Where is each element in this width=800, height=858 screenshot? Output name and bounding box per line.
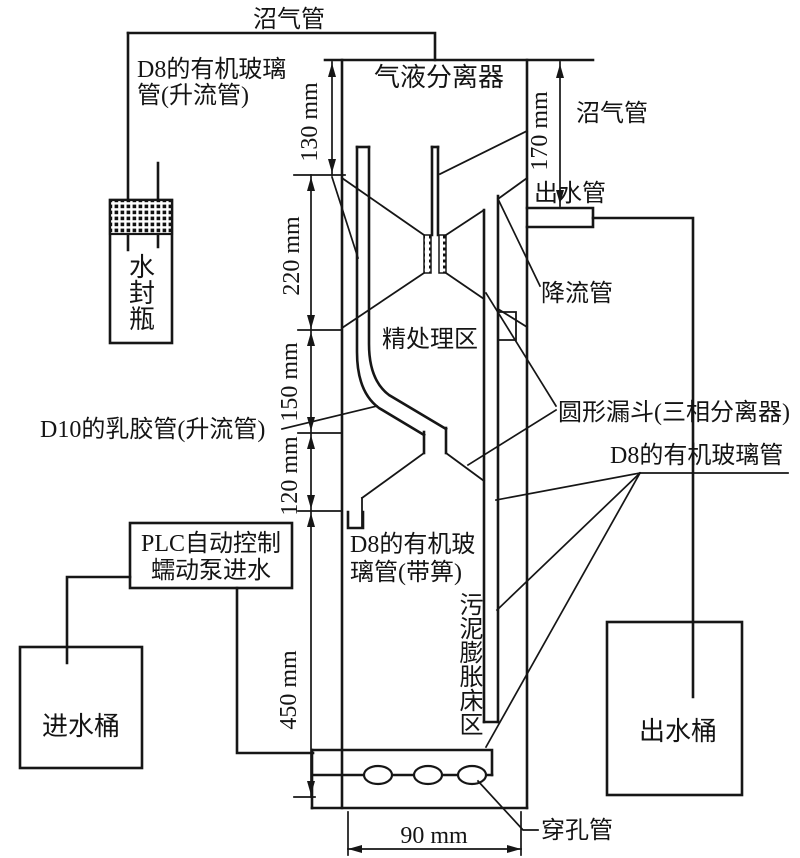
label-biogas-pipe-right: 沼气管 (576, 100, 648, 127)
outlet-bucket-box (607, 622, 742, 795)
perforation-hole (364, 766, 392, 784)
arrowhead (507, 845, 521, 853)
label-d10-latex-riser: D10的乳胶管(升流管) (40, 416, 265, 443)
reactor-diagram: 沼气管 D8的有机玻璃 管(升流管) 水封瓶 气液分离器 沼气管 出水管 降流管… (0, 0, 800, 858)
arrowhead (307, 513, 315, 527)
arrowhead (307, 435, 315, 449)
perforated-throat-left (424, 235, 431, 273)
dim-90mm: 90 mm (400, 823, 468, 849)
arrowhead (307, 315, 315, 329)
arrowhead (328, 159, 336, 173)
label-perforated-pipe: 穿孔管 (541, 817, 613, 844)
label-outlet-bucket: 出水桶 (639, 717, 717, 746)
arrowhead (307, 781, 315, 795)
label-d8-grate-line1: D8的有机玻 (350, 531, 475, 558)
label-outlet-pipe: 出水管 (534, 180, 606, 207)
label-plc-line1: PLC自动控制 (141, 530, 281, 557)
perforation-hole (458, 766, 486, 784)
wall-inlet-port (348, 512, 363, 528)
arrowhead (307, 177, 315, 191)
label-sludge-expansion-zone: 污泥膨胀床区 (455, 592, 483, 736)
label-d8-grate-line2: 璃管(带箅) (350, 559, 462, 586)
dim-120mm: 120 mm (277, 436, 303, 516)
lower-funnel (362, 428, 484, 528)
dimension-lines (294, 62, 560, 855)
inlet-bucket-box (20, 647, 142, 768)
dim-130mm: 130 mm (297, 82, 323, 162)
perforated-throat-right (439, 235, 446, 273)
downflow-pipe-lines (484, 196, 516, 722)
label-d8-glass-riser-line2: 管(升流管) (137, 82, 249, 109)
arrowhead (328, 63, 336, 77)
dim-150mm: 150 mm (277, 342, 303, 422)
label-fine-treatment-zone: 精处理区 (382, 326, 478, 353)
label-circular-funnel: 圆形漏斗(三相分离器) (558, 399, 790, 426)
dim-450mm: 450 mm (276, 650, 302, 730)
label-gas-liquid-separator: 气液分离器 (374, 63, 504, 92)
label-inlet-bucket: 进水桶 (42, 712, 120, 741)
label-d8-glass-riser-line1: D8的有机玻璃 (137, 56, 286, 83)
label-downflow-pipe: 降流管 (541, 280, 613, 307)
diagram-canvas: 沼气管 D8的有机玻璃 管(升流管) 水封瓶 气液分离器 沼气管 出水管 降流管… (0, 0, 800, 858)
dim-170mm: 170 mm (527, 91, 553, 171)
arrowhead (307, 495, 315, 509)
arrowhead (348, 845, 362, 853)
dim-220mm: 220 mm (279, 216, 305, 296)
right-riser-pipe (432, 147, 438, 235)
label-d8-glass-pipe: D8的有机玻璃管 (610, 442, 783, 469)
label-plc-line2: 蠕动泵进水 (151, 557, 271, 584)
perforation-hole (414, 766, 442, 784)
label-water-seal-bottle: 水封瓶 (126, 253, 155, 331)
arrowhead (307, 417, 315, 431)
arrowhead (307, 332, 315, 346)
arrowhead (556, 64, 564, 78)
label-biogas-pipe-top: 沼气管 (253, 6, 325, 33)
bottle-stopper (110, 200, 172, 234)
